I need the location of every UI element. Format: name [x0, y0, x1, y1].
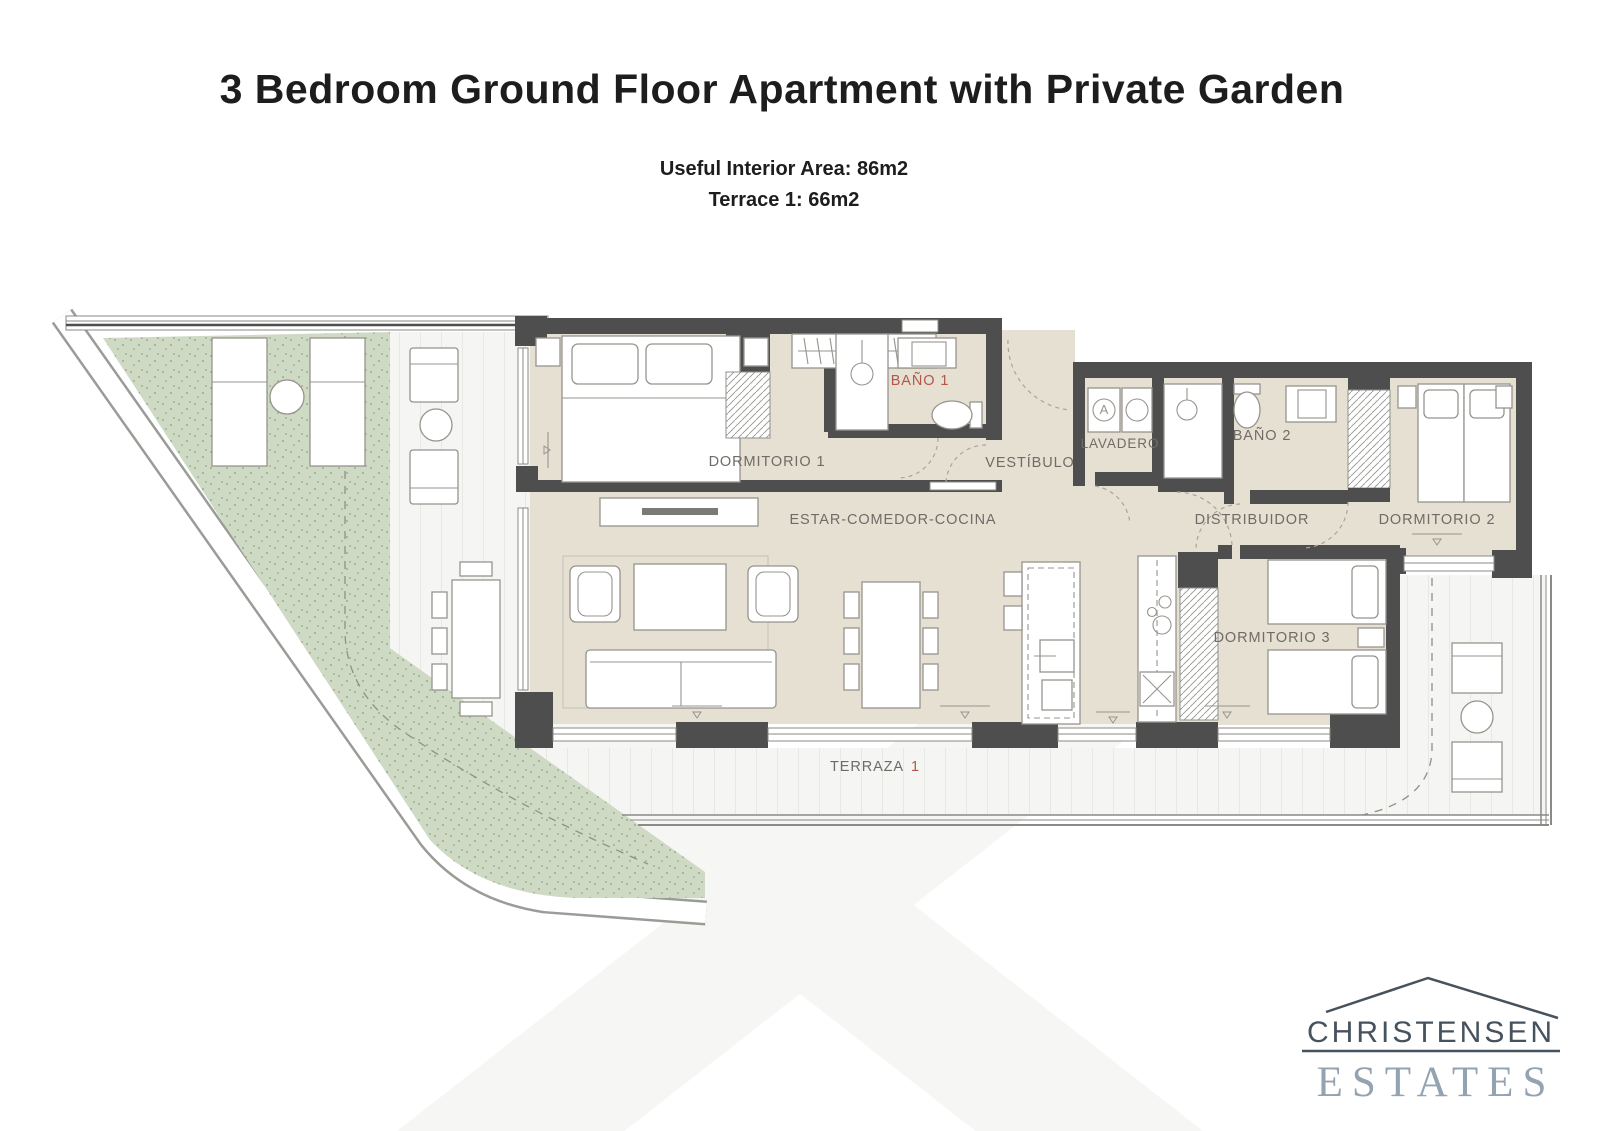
kitchen-counter [1138, 556, 1176, 722]
floorplan-page: 3 Bedroom Ground Floor Apartment with Pr… [0, 0, 1600, 1131]
logo-word: ESTATES [1317, 1059, 1556, 1106]
shower [836, 334, 888, 430]
bathroom2-sink [1286, 386, 1336, 422]
terrace-chair [1452, 742, 1502, 792]
stove [1140, 672, 1174, 706]
sofa [586, 650, 776, 708]
coffee-table [634, 564, 726, 630]
distribuidor-label: DISTRIBUIDOR [1195, 512, 1310, 528]
floorplan-canvas: 3 Bedroom Ground Floor Apartment with Pr… [0, 0, 1600, 1131]
wardrobe [726, 372, 770, 438]
sun-lounger [212, 338, 267, 466]
vestibulo-label: VESTÍBULO [985, 454, 1075, 471]
nightstand [536, 338, 560, 366]
nightstand [744, 338, 768, 366]
deck-armchair [410, 348, 458, 402]
terrace-chair [1452, 643, 1502, 693]
tv-unit [600, 498, 758, 526]
armchair [748, 566, 798, 622]
terrace-area-text: Terrace 1: 66m2 [709, 189, 860, 211]
lavadero: A LAVADERO [1081, 388, 1160, 451]
deck-round-table [420, 409, 452, 441]
estar-label: ESTAR-COMEDOR-COCINA [789, 512, 996, 528]
single-bed [1268, 650, 1386, 714]
terrace-round-table [1461, 701, 1493, 733]
interior-area-text: Useful Interior Area: 86m2 [660, 158, 908, 180]
logo-name: CHRISTENSEN [1307, 1016, 1555, 1049]
dryer [1122, 388, 1152, 432]
lavadero-label: LAVADERO [1081, 436, 1160, 451]
sun-lounger [310, 338, 365, 466]
bathroom1-sink [898, 338, 956, 368]
armchair [570, 566, 620, 622]
nightstand [1496, 386, 1512, 408]
washing-machine: A [1088, 388, 1120, 432]
shower2 [1164, 384, 1222, 478]
bathroom1-toilet [932, 401, 982, 429]
nightstand [1398, 386, 1416, 408]
bano1-label: BAÑO 1 [891, 372, 950, 389]
dormitorio1-label: DORMITORIO 1 [709, 454, 826, 470]
dining-table [844, 582, 938, 708]
dormitorio2-label: DORMITORIO 2 [1379, 512, 1496, 528]
single-bed [1268, 560, 1386, 624]
garden-fence [66, 316, 548, 330]
deck-armchair [410, 450, 458, 504]
page-title: 3 Bedroom Ground Floor Apartment with Pr… [220, 66, 1345, 112]
garden-side-table [270, 380, 304, 414]
vestibulo: VESTÍBULO [985, 454, 1075, 471]
nightstand [1358, 628, 1384, 647]
bano2-label: BAÑO 2 [1233, 427, 1292, 444]
bathroom2-toilet [1234, 384, 1260, 428]
washer-a-icon: A [1100, 402, 1109, 417]
single-bed [1418, 384, 1464, 502]
dormitorio3-label: DORMITORIO 3 [1214, 630, 1331, 646]
